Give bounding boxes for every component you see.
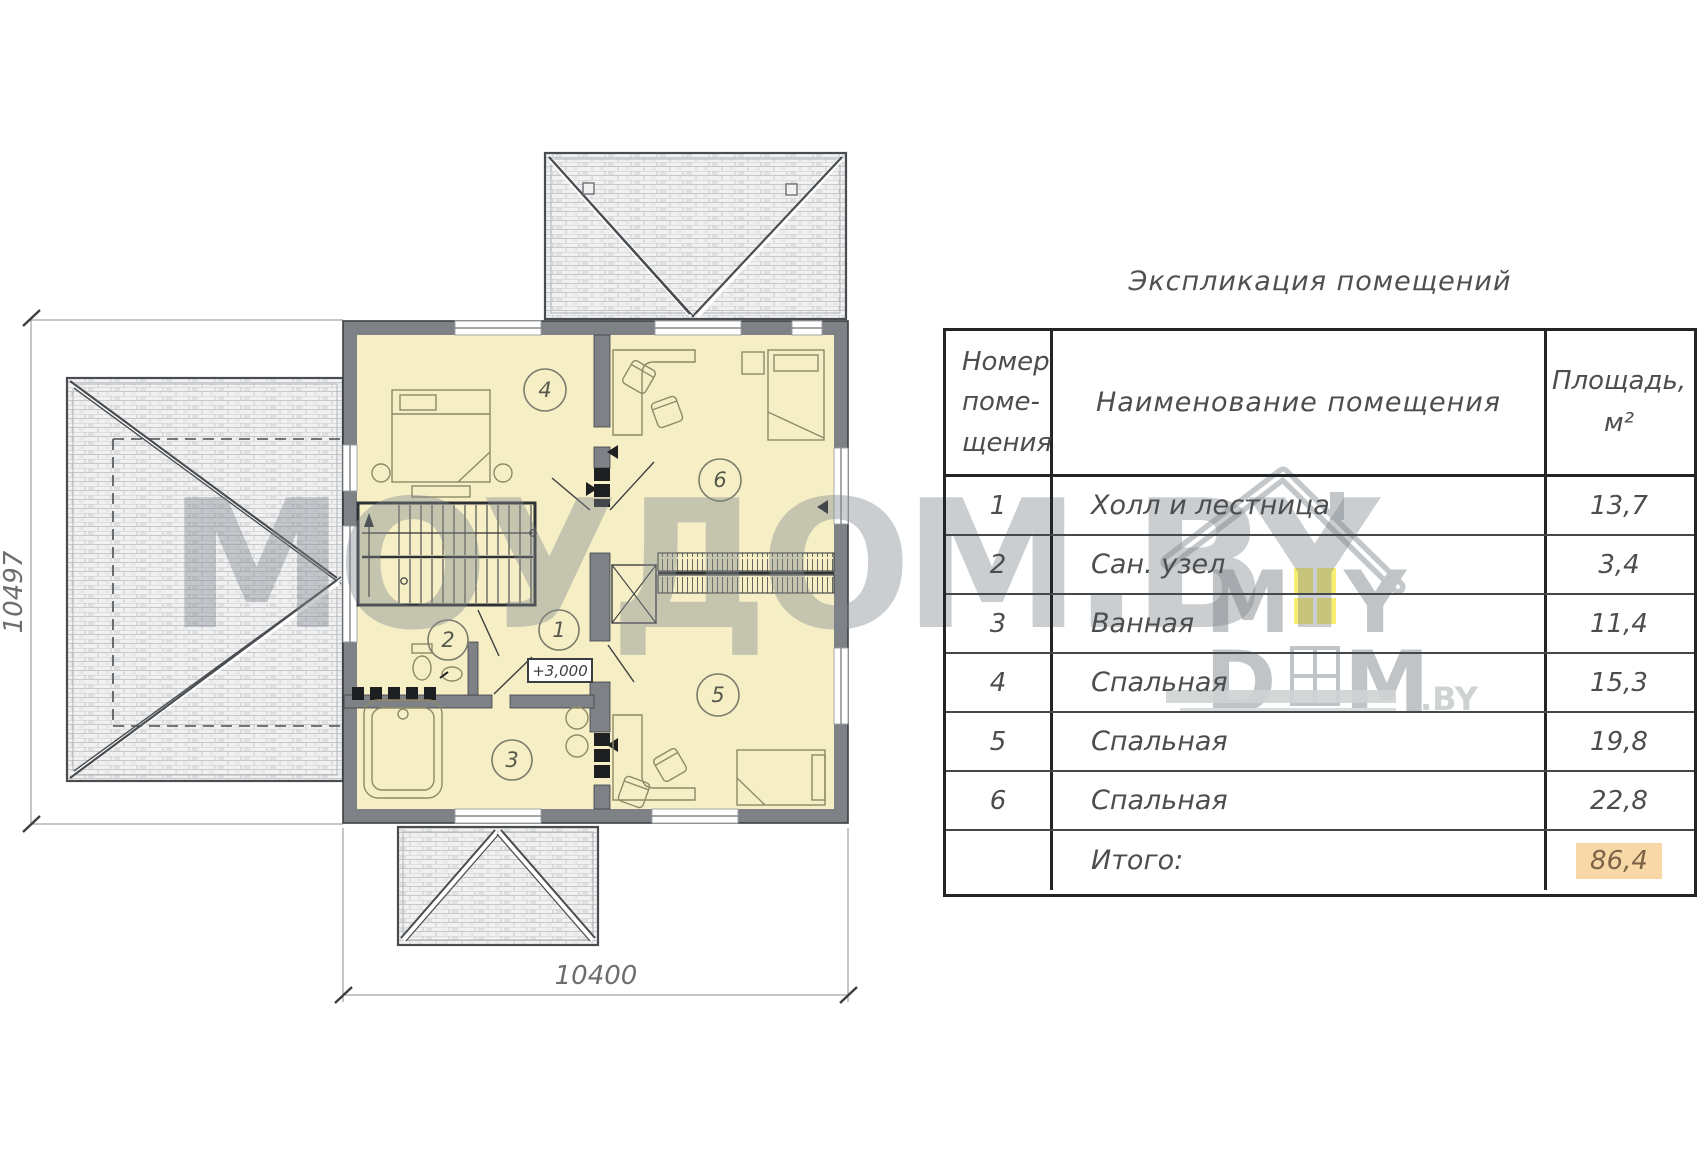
row-name: Спальная <box>1053 654 1547 711</box>
header-room-area: Площадь, м² <box>1547 331 1691 474</box>
elevation-label: +3,000 <box>532 662 588 680</box>
dimension-bottom-label: 10400 <box>555 961 638 991</box>
roof-top <box>545 153 846 319</box>
table-row: 4 Спальная 15,3 <box>946 654 1694 713</box>
table-title: Экспликация помещений <box>943 266 1697 297</box>
rooms-table: Номер поме- щения Наименование помещения… <box>943 328 1697 897</box>
row-number: 5 <box>946 713 1053 770</box>
table-total-row: Итого: 86,4 <box>946 831 1694 890</box>
header-room-name: Наименование помещения <box>1053 331 1547 474</box>
building: 1 2 3 4 5 6 +3,000 <box>343 321 848 823</box>
roof-left <box>67 378 343 781</box>
total-label: Итого: <box>1053 831 1547 890</box>
row-area: 3,4 <box>1547 536 1691 593</box>
table-row: 3 Ванная 11,4 <box>946 595 1694 654</box>
row-area: 22,8 <box>1547 772 1691 829</box>
table-header-row: Номер поме- щения Наименование помещения… <box>946 331 1694 477</box>
row-number: 3 <box>946 595 1053 652</box>
screenshot-root: 10497 10400 <box>0 0 1700 1156</box>
row-name: Холл и лестница <box>1053 477 1547 534</box>
row-number: 2 <box>946 536 1053 593</box>
roof-porch <box>398 827 598 945</box>
row-number: 1 <box>946 477 1053 534</box>
table-row: 2 Сан. узел 3,4 <box>946 536 1694 595</box>
dimension-left-label: 10497 <box>0 550 29 633</box>
row-number: 6 <box>946 772 1053 829</box>
room-5-number: 5 <box>711 683 724 707</box>
row-area: 15,3 <box>1547 654 1691 711</box>
total-value-highlight: 86,4 <box>1576 843 1662 879</box>
room-4-number: 4 <box>538 378 551 402</box>
row-area: 13,7 <box>1547 477 1691 534</box>
room-2-number: 2 <box>441 628 454 652</box>
total-empty <box>946 831 1053 890</box>
row-name: Сан. узел <box>1053 536 1547 593</box>
header-room-number: Номер поме- щения <box>946 331 1053 474</box>
row-area: 11,4 <box>1547 595 1691 652</box>
elevation-tag: +3,000 <box>528 659 592 682</box>
row-number: 4 <box>946 654 1053 711</box>
row-name: Ванная <box>1053 595 1547 652</box>
total-area: 86,4 <box>1547 831 1691 890</box>
table-row: 1 Холл и лестница 13,7 <box>946 477 1694 536</box>
room-3-number: 3 <box>505 748 518 772</box>
room-1-number: 1 <box>552 618 565 642</box>
row-area: 19,8 <box>1547 713 1691 770</box>
table-row: 5 Спальная 19,8 <box>946 713 1694 772</box>
row-name: Спальная <box>1053 713 1547 770</box>
row-name: Спальная <box>1053 772 1547 829</box>
table-row: 6 Спальная 22,8 <box>946 772 1694 831</box>
room-6-number: 6 <box>713 468 726 492</box>
